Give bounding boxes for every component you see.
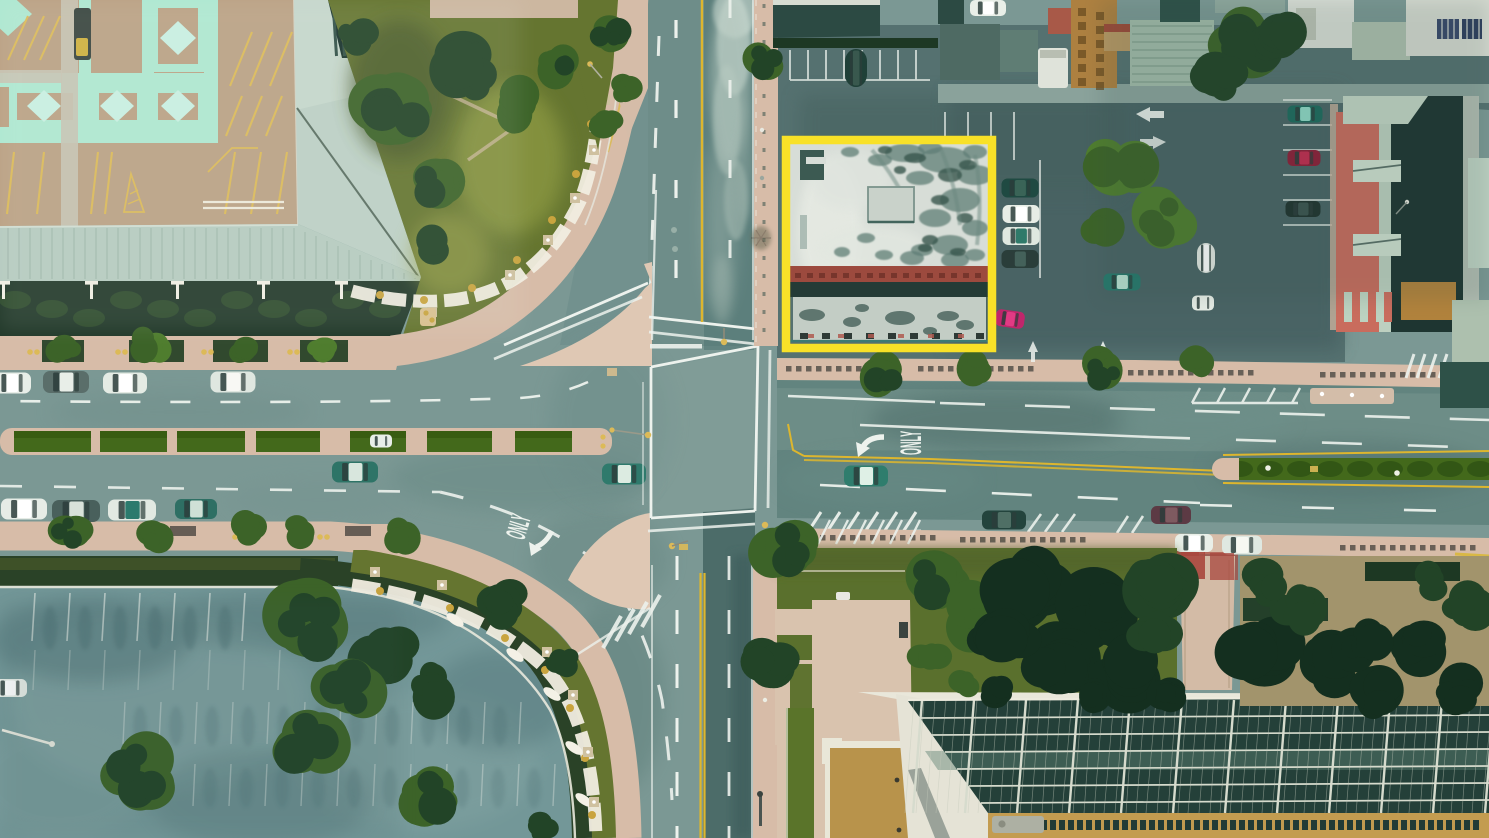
svg-text:ONLY: ONLY <box>894 431 928 455</box>
